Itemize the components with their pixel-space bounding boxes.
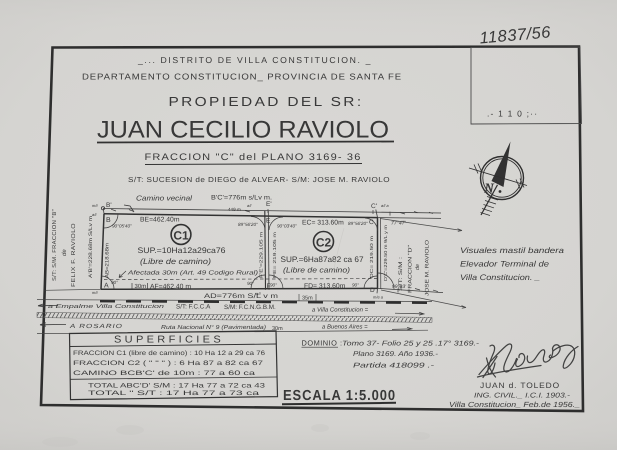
svg-text:90°03'40": 90°03'40" (277, 224, 297, 229)
svg-text:449 m: 449 m (228, 207, 241, 212)
svg-text:AD=776m S/L v m: AD=776m S/L v m (204, 293, 279, 300)
svg-text:m/t: m/t (92, 203, 98, 208)
svg-text:JUAN CECILIO RAVIOLO: JUAN CECILIO RAVIOLO (97, 117, 389, 144)
svg-text:DOMINIO :: DOMINIO : (302, 339, 343, 348)
svg-text:TOTAL " S/T : 1: TOTAL " S/T : 17 Ha 77 a 73 ca (88, 390, 260, 397)
svg-text:(Libre de camino): (Libre de camino) (140, 257, 211, 266)
svg-text:Visuales mastil bandera: Visuales mastil bandera (460, 246, 565, 255)
svg-text:m/t: m/t (92, 290, 98, 295)
svg-text:SUPERFICIES: SUPERFICIES (114, 335, 224, 346)
svg-text:89°56'20": 89°56'20" (348, 221, 368, 226)
svg-text:S/M: F.C.N.G.B.M.: S/M: F.C.N.G.B.M. (224, 304, 276, 311)
svg-text:FE= 219.105 m: FE= 219.105 m (272, 231, 277, 278)
svg-text:FRACCION "C" del PLANO 3169- 3: FRACCION "C" del PLANO 3169- 36 (145, 152, 362, 163)
svg-text:C1: C1 (173, 229, 189, 243)
svg-text:FRACCION "D": FRACCION "D" (408, 245, 414, 293)
svg-text:90°: 90° (352, 283, 359, 288)
svg-text:Afectada 30m (Art. 49 Codigo R: Afectada 30m (Art. 49 Codigo Rural) (127, 270, 258, 277)
svg-text:90°: 90° (111, 280, 118, 285)
svg-text:a/l: a/l (247, 203, 251, 208)
svg-text:90°05'40": 90°05'40" (112, 224, 132, 229)
svg-text:PROPIEDAD DEL SR:: PROPIEDAD DEL SR: (169, 94, 364, 109)
svg-text:90°: 90° (270, 283, 277, 288)
svg-text:FRACCION C2 ( " ": FRACCION C2 ( " " " ) : 6 Ha 87 a 82 ca … (73, 360, 264, 367)
svg-text:F'E'=229.105 m: F'E'=229.105 m (259, 232, 264, 278)
svg-text:DEPARTAMENTO CONSTITUCION_ PRO: DEPARTAMENTO CONSTITUCION_ PROVINCIA DE … (82, 72, 402, 82)
svg-text:SUP.=10Ha12a29ca76: SUP.=10Ha12a29ca76 (138, 246, 227, 255)
svg-text:89°56'20": 89°56'20" (238, 222, 258, 227)
svg-text:A'B'=228.68m S/Lv m: A'B'=228.68m S/Lv m (88, 216, 94, 278)
svg-text:AF=462.40 m: AF=462.40 m (150, 284, 191, 291)
svg-text:de: de (415, 264, 421, 270)
svg-text:C2: C2 (316, 236, 332, 250)
svg-text:S/T: S/M :: S/T: S/M : (398, 257, 404, 291)
svg-text:de: de (61, 249, 68, 256)
svg-text:E: E (266, 218, 271, 225)
svg-text:A: A (104, 283, 109, 290)
svg-text:30m: 30m (135, 283, 147, 290)
svg-text:Plano 3169. Año 1936.-: Plano 3169. Año 1936.- (353, 350, 439, 358)
svg-text:S/T: SUCESION de DIEGO de ALVE: S/T: SUCESION de DIEGO de ALVEAR- S/M: J… (128, 175, 390, 184)
svg-text:N: N (484, 181, 495, 196)
svg-text:FRACCION C1 (libre de camino): FRACCION C1 (libre de camino) : 10 Ha 12… (73, 350, 266, 357)
svg-text:A ROSARIO: A ROSARIO (69, 323, 123, 330)
svg-text:_... DISTRITO DE VILLA CONSTIT: _... DISTRITO DE VILLA CONSTITUCION. _ (137, 55, 372, 65)
svg-text:ESCALA 1:5.000: ESCALA 1:5.000 (283, 388, 396, 404)
svg-text:TOTAL ABC'D' S/M : 17 Ha: TOTAL ABC'D' S/M : 17 Ha 77 a 72 ca 43 (88, 383, 266, 390)
svg-text:E': E' (266, 201, 272, 208)
svg-text:CAMINO BCB'C' de 10m :: CAMINO BCB'C' de 10m : 77 a 60 ca (73, 370, 256, 377)
svg-text:D: D (370, 287, 375, 294)
svg-text:S/T: S/M. FRACCION "B": S/T: S/M. FRACCION "B" (51, 209, 58, 281)
svg-text:Tomo 37- Folio 25 y 25 .17° 31: Tomo 37- Folio 25 y 25 .17° 3169.- (342, 340, 480, 348)
svg-text:Partida 418099 .-: Partida 418099 .- (353, 362, 435, 370)
svg-text:a Buenos Aires =: a Buenos Aires = (322, 324, 368, 331)
svg-text:C: C (369, 219, 374, 226)
svg-text:JUAN d. TOLEDO: JUAN d. TOLEDO (480, 381, 560, 390)
svg-text:B': B' (106, 202, 112, 209)
svg-text:ING. CIVIL._ I.C.I. 1903.-: ING. CIVIL._ I.C.I. 1903.- (474, 393, 571, 400)
svg-text:a Empalme Villa Constitucion: a Empalme Villa Constitucion (48, 303, 164, 310)
svg-text:B: B (106, 217, 111, 224)
svg-text:m/e a: m/e a (373, 295, 384, 300)
svg-text:.- 1 1 0 ;··: .- 1 1 0 ;·· (487, 109, 538, 119)
svg-text:Elevador Terminal de: Elevador Terminal de (460, 260, 550, 269)
svg-text:a/l a: a/l a (381, 203, 389, 208)
svg-text:(Libre de camino): (Libre de camino) (283, 266, 351, 275)
svg-text:Camino vecinal: Camino vecinal (136, 194, 192, 203)
svg-text:BE=462.40m: BE=462.40m (140, 217, 180, 224)
svg-text:90°: 90° (247, 281, 254, 286)
svg-text:FELIX F. RAVIOLO: FELIX F. RAVIOLO (71, 223, 77, 287)
svg-text:AB=218.68m: AB=218.68m (105, 243, 111, 278)
svg-text:Villa Constitucion_ Feb.de 195: Villa Constitucion_ Feb.de 1956._ (449, 400, 580, 409)
svg-text:S/T: F.C.C.A: S/T: F.C.C.A (176, 304, 211, 311)
svg-text:Villa Constitucion. _: Villa Constitucion. _ (460, 273, 540, 282)
svg-text:C': C' (371, 203, 377, 210)
svg-text:EC= 313.60m: EC= 313.60m (302, 220, 344, 227)
svg-text:SUP.=6Ha87a82 ca 67: SUP.=6Ha87a82 ca 67 (281, 255, 365, 264)
svg-text:a Villa Constitucion =: a Villa Constitucion = (312, 307, 369, 314)
svg-text:D'C'=229.50 m 9/L y m: D'C'=229.50 m 9/L y m (383, 225, 388, 281)
svg-text:FD= 313.60m: FD= 313.60m (304, 283, 346, 290)
svg-text:JOSE M. RAVIOLO: JOSE M. RAVIOLO (425, 240, 431, 296)
svg-text:Ruta Nacional N° 9 (Pavimentad: Ruta Nacional N° 9 (Pavimentada) (161, 324, 266, 331)
svg-text:B'C'=776m s/Lv m.: B'C'=776m s/Lv m. (211, 195, 272, 202)
svg-text:DC= 219.50 m: DC= 219.50 m (369, 236, 374, 278)
